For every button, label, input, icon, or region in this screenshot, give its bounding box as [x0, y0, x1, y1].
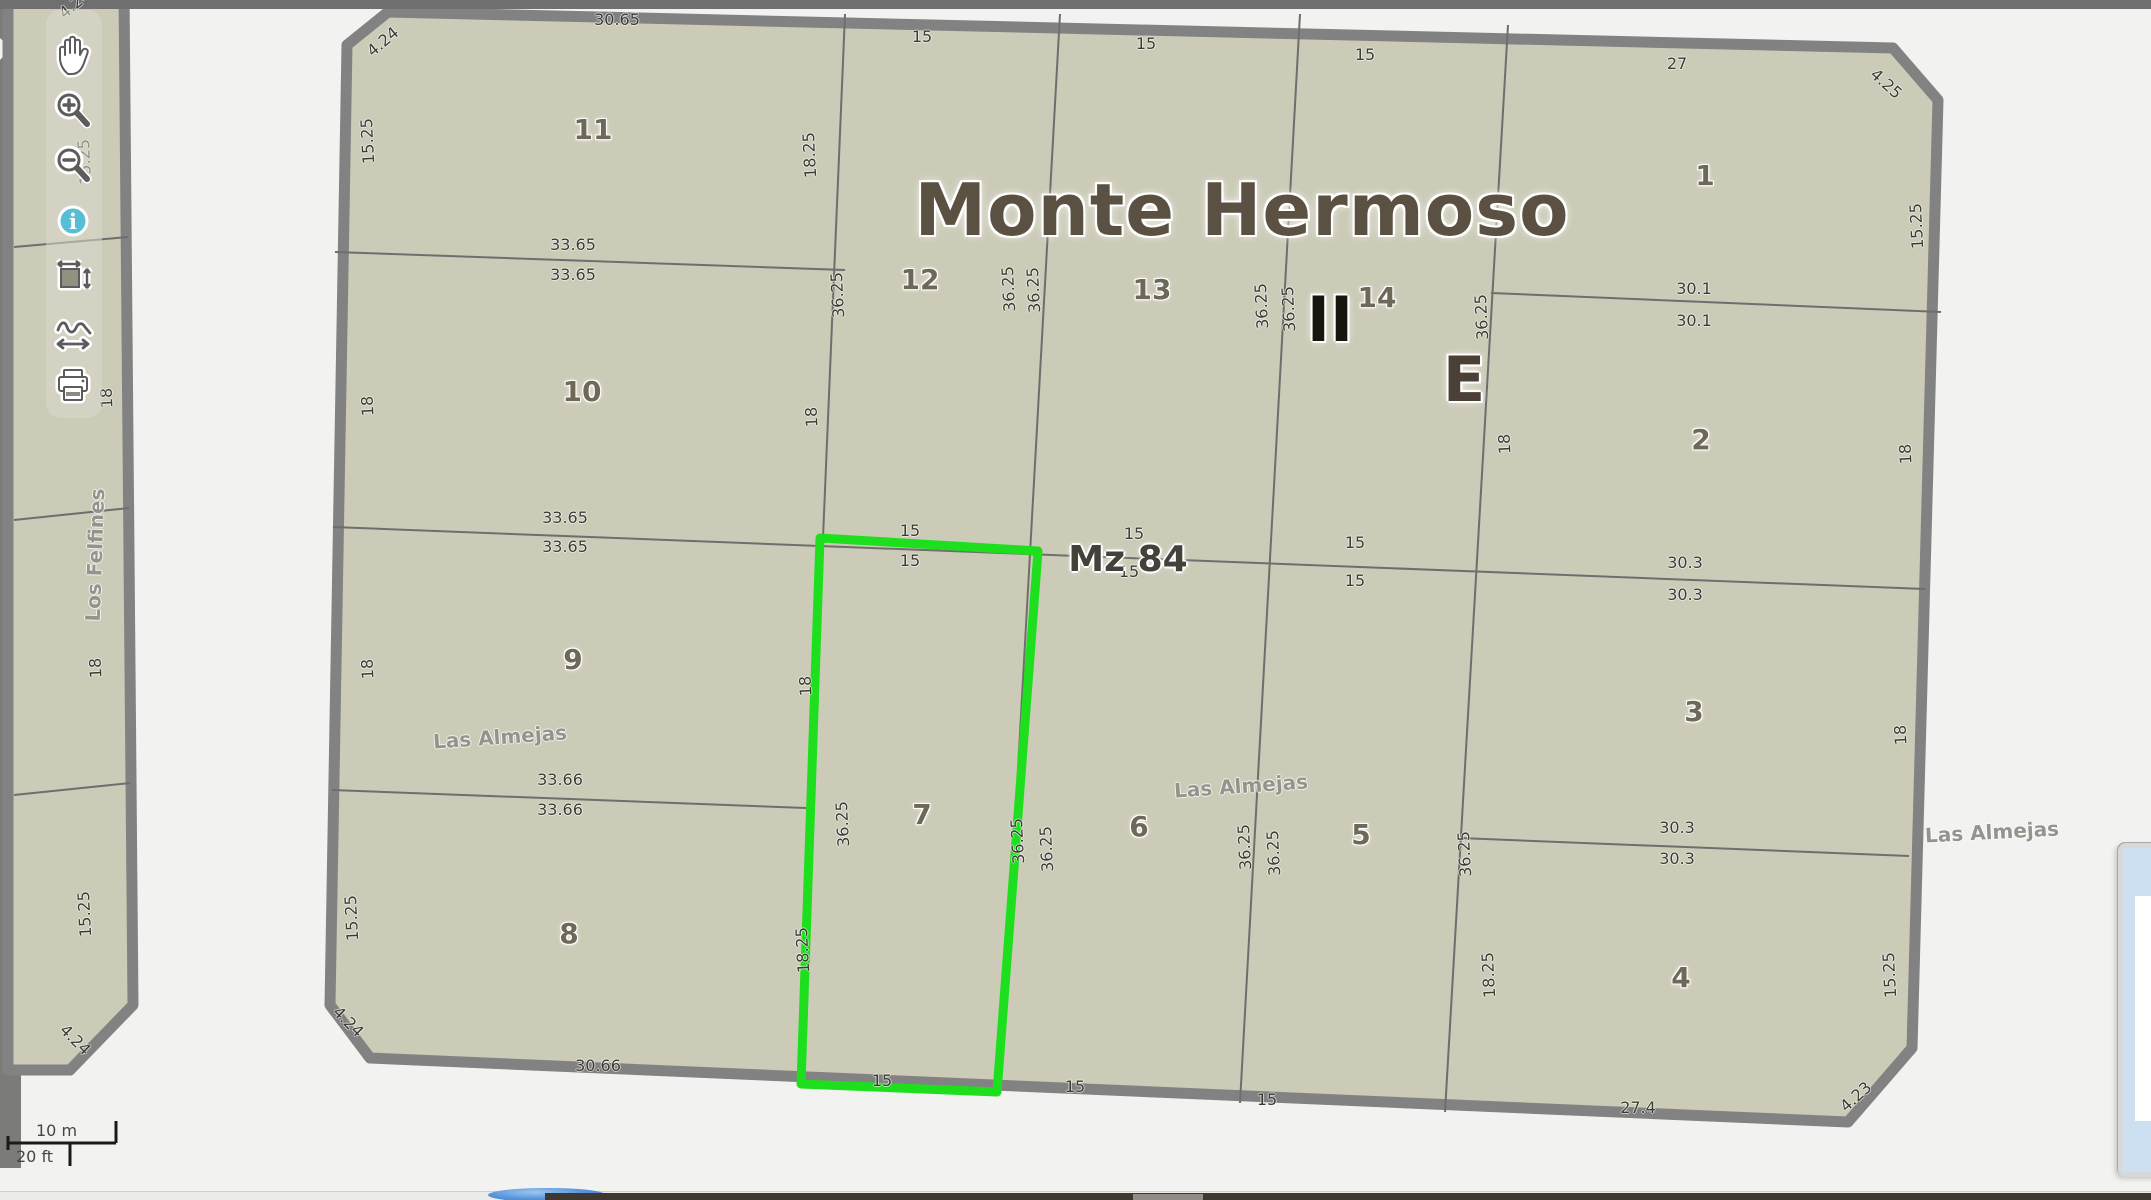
svg-text:i: i — [69, 209, 77, 234]
north-street-edge — [0, 0, 2151, 9]
printer-icon — [50, 363, 98, 411]
zoom-in-button[interactable] — [50, 87, 98, 135]
scale-imperial-label: 20 ft — [16, 1147, 53, 1166]
measure-button[interactable] — [50, 309, 98, 357]
identify-button[interactable]: i — [50, 198, 98, 246]
magnifier-plus-icon — [50, 87, 98, 135]
info-icon: i — [50, 198, 98, 246]
scale-bar: 10 m 20 ft — [0, 1110, 180, 1180]
overview-panel-content — [2135, 896, 2151, 1121]
pan-tool-button[interactable] — [50, 32, 98, 80]
footer-light-segment — [1133, 1194, 1203, 1200]
extent-rect-icon — [50, 254, 98, 302]
zoom-out-button[interactable] — [50, 142, 98, 190]
cadastral-map-canvas[interactable] — [0, 0, 2151, 1200]
measure-path-icon — [50, 309, 98, 357]
zoom-extent-button[interactable] — [50, 254, 98, 302]
hand-icon — [50, 32, 98, 80]
overview-panel-cutoff[interactable] — [2118, 843, 2151, 1177]
map-toolbar: i — [46, 10, 102, 418]
footer-strip — [0, 1191, 2151, 1200]
print-button[interactable] — [50, 363, 98, 411]
scale-metric-label: 10 m — [36, 1121, 77, 1140]
block-mz84[interactable] — [330, 12, 1938, 1122]
footer-dark-bar — [545, 1193, 2151, 1200]
magnifier-minus-icon — [50, 142, 98, 190]
map-viewer: 30.651515152733.6533.6530.130.133.6533.6… — [0, 0, 2151, 1200]
